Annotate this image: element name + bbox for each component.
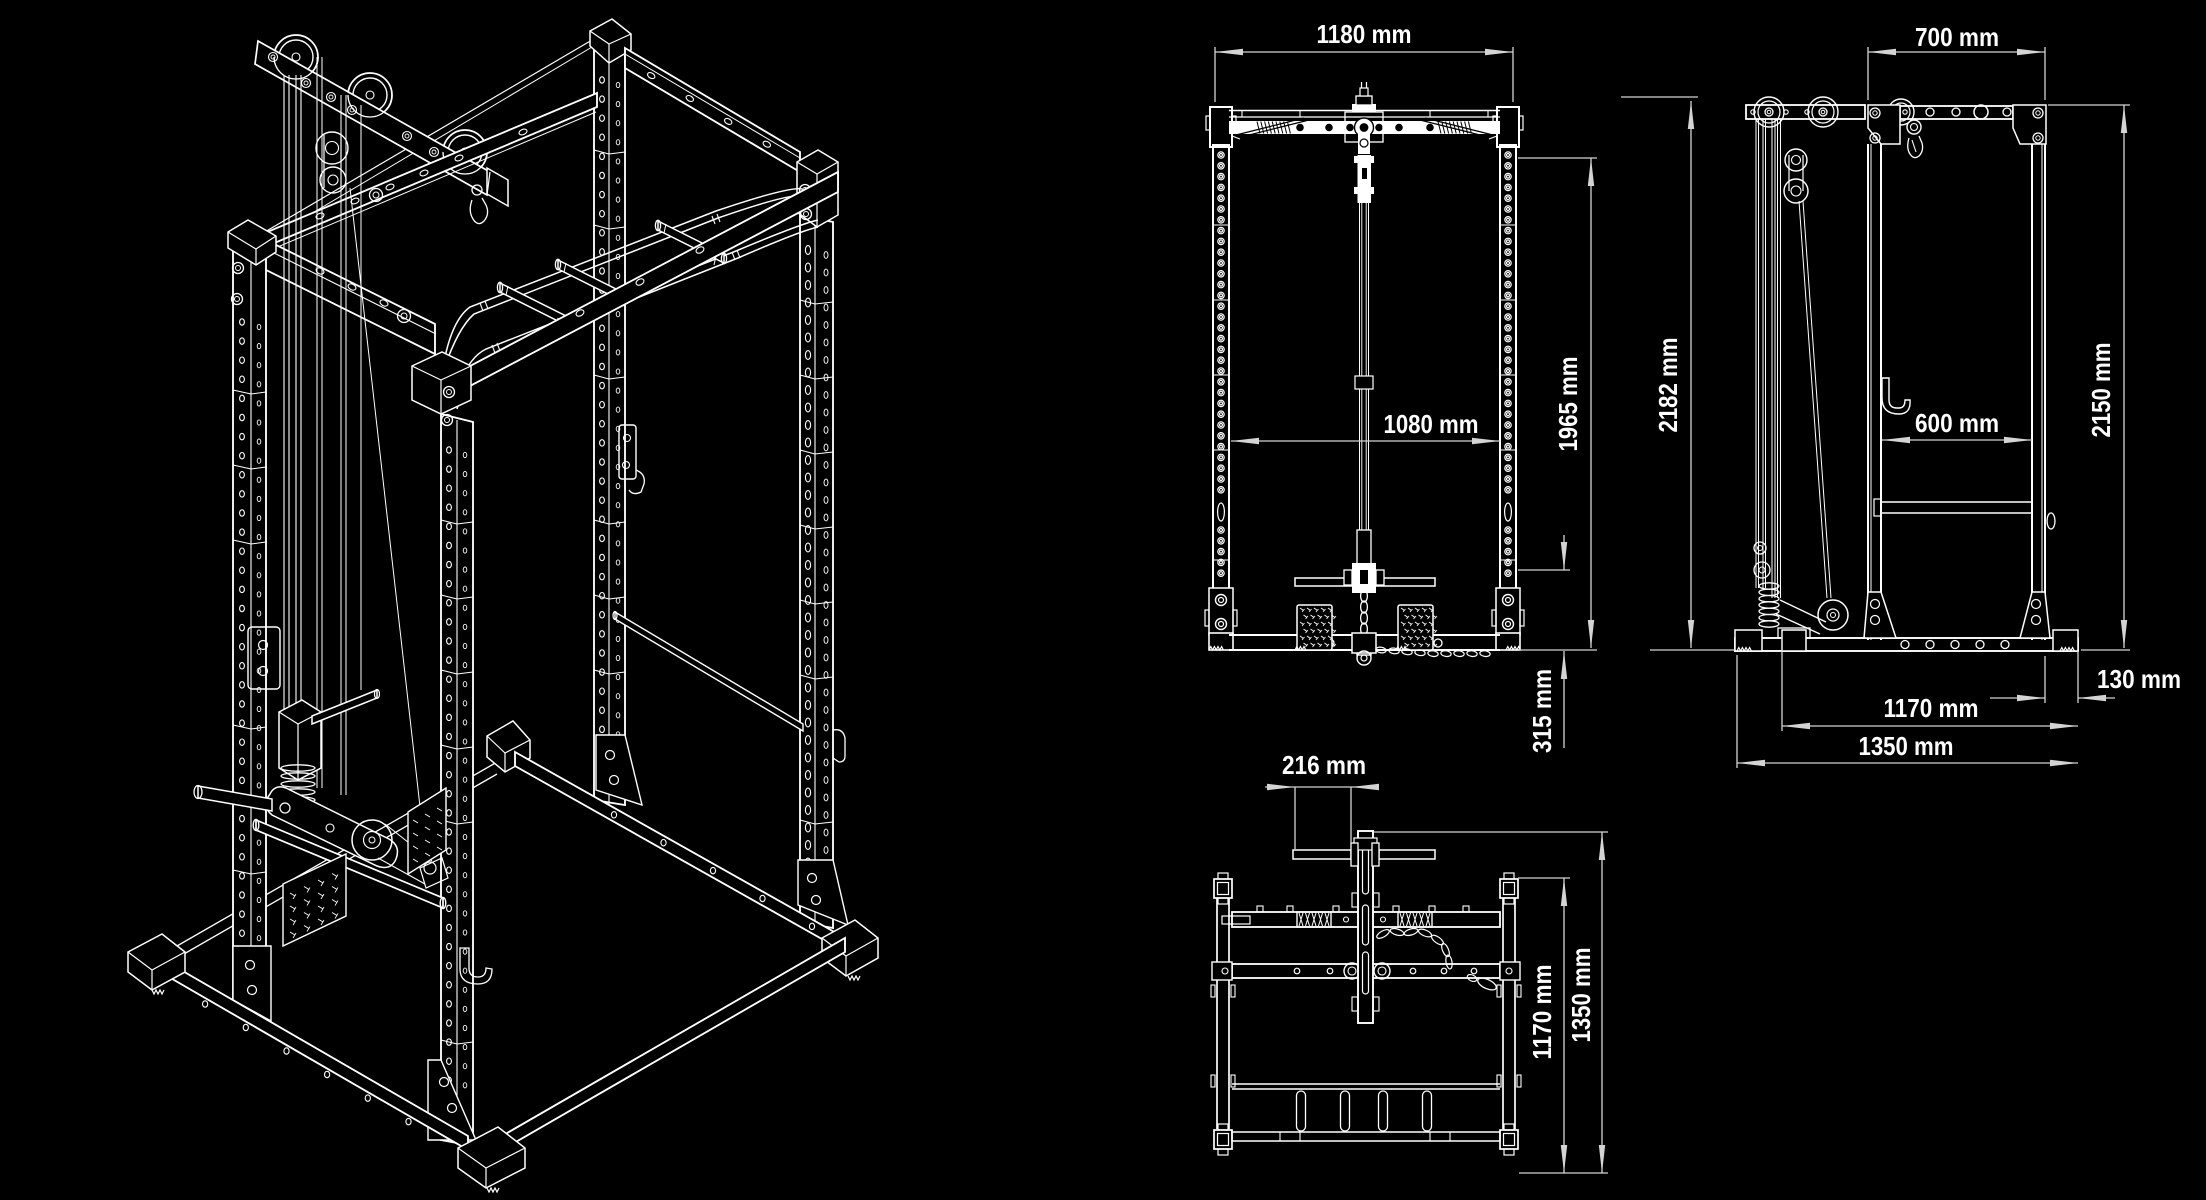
svg-text:130 mm: 130 mm — [2097, 664, 2181, 694]
svg-text:1170 mm: 1170 mm — [1884, 693, 1979, 723]
svg-text:1170 mm: 1170 mm — [1527, 965, 1557, 1060]
svg-text:2182 mm: 2182 mm — [1653, 338, 1683, 433]
svg-text:1350 mm: 1350 mm — [1859, 731, 1954, 761]
svg-text:1080 mm: 1080 mm — [1384, 409, 1479, 439]
svg-text:216 mm: 216 mm — [1282, 750, 1366, 780]
svg-text:2150 mm: 2150 mm — [2086, 343, 2116, 438]
svg-text:600 mm: 600 mm — [1915, 408, 1999, 438]
svg-text:1350 mm: 1350 mm — [1566, 948, 1596, 1043]
svg-text:315 mm: 315 mm — [1527, 669, 1557, 753]
svg-text:1965 mm: 1965 mm — [1553, 357, 1583, 452]
svg-text:1180 mm: 1180 mm — [1317, 19, 1412, 49]
svg-text:700 mm: 700 mm — [1915, 22, 1999, 52]
